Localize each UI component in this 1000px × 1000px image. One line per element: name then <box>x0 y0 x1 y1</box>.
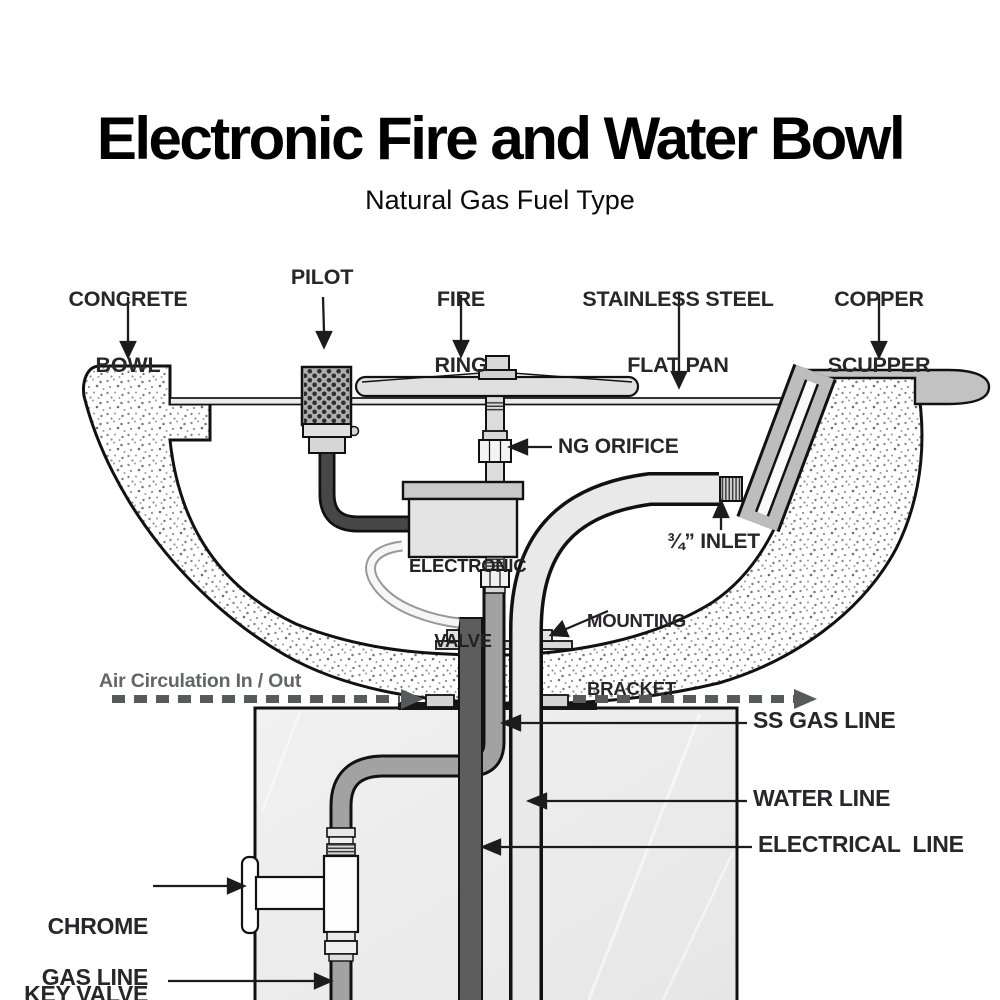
label-ng-orifice: NG ORIFICE <box>558 436 679 457</box>
label-electrical-line: ELECTRICAL LINE <box>758 834 964 855</box>
label-ss-gas-line: SS GAS LINE <box>753 710 895 731</box>
arrow-ng-orifice <box>510 440 552 454</box>
label-copper-scupper: COPPER SCUPPER <box>828 244 931 398</box>
pilot-burner <box>302 367 359 453</box>
arrow-pilot <box>317 297 331 347</box>
page-subtitle: Natural Gas Fuel Type <box>0 186 1000 214</box>
diagram-page: Electronic Fire and Water Bowl Natural G… <box>0 0 1000 1000</box>
label-gas-line: GAS LINE <box>8 966 148 989</box>
label-electronic-valve: ELECTRONIC VALVE <box>409 503 517 678</box>
label-air-circulation: Air Circulation In / Out <box>99 671 301 692</box>
arrow-chrome-key-valve <box>153 879 244 893</box>
label-mounting-bracket: MOUNTING BRACKET <box>587 565 686 723</box>
label-pilot: PILOT <box>291 266 353 288</box>
label-inlet: ¾” INLET <box>667 531 760 552</box>
page-title: Electronic Fire and Water Bowl <box>0 108 1000 170</box>
label-water-line: WATER LINE <box>753 788 890 809</box>
inlet-fitting <box>720 477 742 501</box>
label-concrete-bowl: CONCRETE BOWL <box>68 244 187 398</box>
pilot-pipe <box>327 452 409 524</box>
label-fire-ring: FIRE RING <box>435 244 488 398</box>
label-flat-pan: STAINLESS STEEL FLAT PAN <box>582 244 773 398</box>
